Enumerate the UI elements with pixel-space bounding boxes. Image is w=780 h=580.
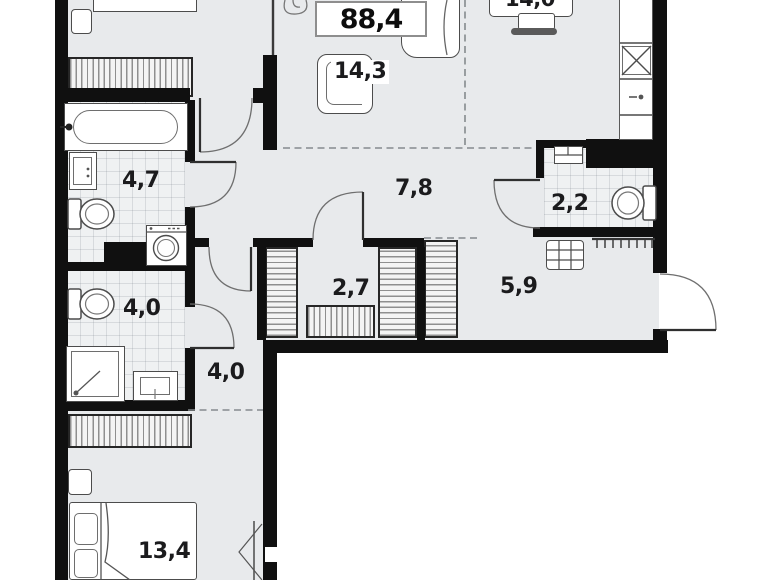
stool-icon (546, 240, 584, 270)
duct-block (104, 242, 148, 270)
sink-basin-icon (73, 157, 92, 185)
shower-tray-icon (71, 351, 119, 397)
window-notch (265, 547, 277, 562)
nightstand-icon (68, 469, 92, 495)
wall (653, 0, 667, 273)
total-area-label: 88,4 (340, 4, 403, 35)
wall (55, 0, 68, 580)
cabinet-divider (620, 114, 652, 116)
room-label-bathroom-lower: 4,0 (123, 298, 160, 320)
room-label-hallway: 7,8 (395, 178, 432, 200)
wardrobe-icon (265, 247, 298, 338)
room-label-closet: 2,7 (332, 278, 369, 300)
stove-icon (622, 46, 651, 75)
room-label-wc: 2,2 (551, 193, 588, 215)
wall (263, 340, 277, 580)
room-label-kitchen: 14,0 (505, 0, 555, 10)
pillow-icon (74, 513, 98, 545)
wall (185, 348, 195, 402)
wall (263, 55, 277, 150)
room-label-living: 14,3 (331, 60, 389, 84)
room-label-bedroom: 13,4 (138, 541, 190, 563)
chair-back-icon (511, 28, 557, 35)
total-area-box: 88,4 (315, 1, 427, 37)
nightstand-icon (71, 9, 92, 34)
wall (363, 238, 424, 247)
wardrobe-icon (306, 305, 375, 338)
floor-plan: 88,4 14,3 14,0 4,7 7,8 2,2 4,0 2,7 5,9 4… (0, 0, 780, 580)
pillow-icon (74, 549, 98, 578)
washing-machine-icon (146, 225, 187, 266)
bathtub-basin-icon (73, 110, 178, 144)
room-label-bathroom-upper: 4,7 (122, 170, 159, 192)
wall (55, 88, 190, 102)
wall (417, 247, 425, 340)
wall (267, 340, 668, 353)
wall (257, 247, 266, 340)
wall (195, 238, 209, 247)
wardrobe-icon (68, 414, 192, 448)
cabinet-divider (620, 78, 652, 80)
wall (533, 227, 658, 237)
room-label-entry-hall: 5,9 (500, 276, 537, 298)
duct-block (586, 139, 654, 168)
room-label-corridor: 4,0 (207, 362, 244, 384)
sink-icon (554, 146, 583, 164)
sink-basin-icon (140, 377, 170, 395)
cabinet-divider (620, 42, 652, 44)
bed-icon (93, 0, 197, 12)
wall (253, 238, 313, 247)
wardrobe-icon (424, 240, 458, 338)
wardrobe-icon (378, 247, 417, 338)
